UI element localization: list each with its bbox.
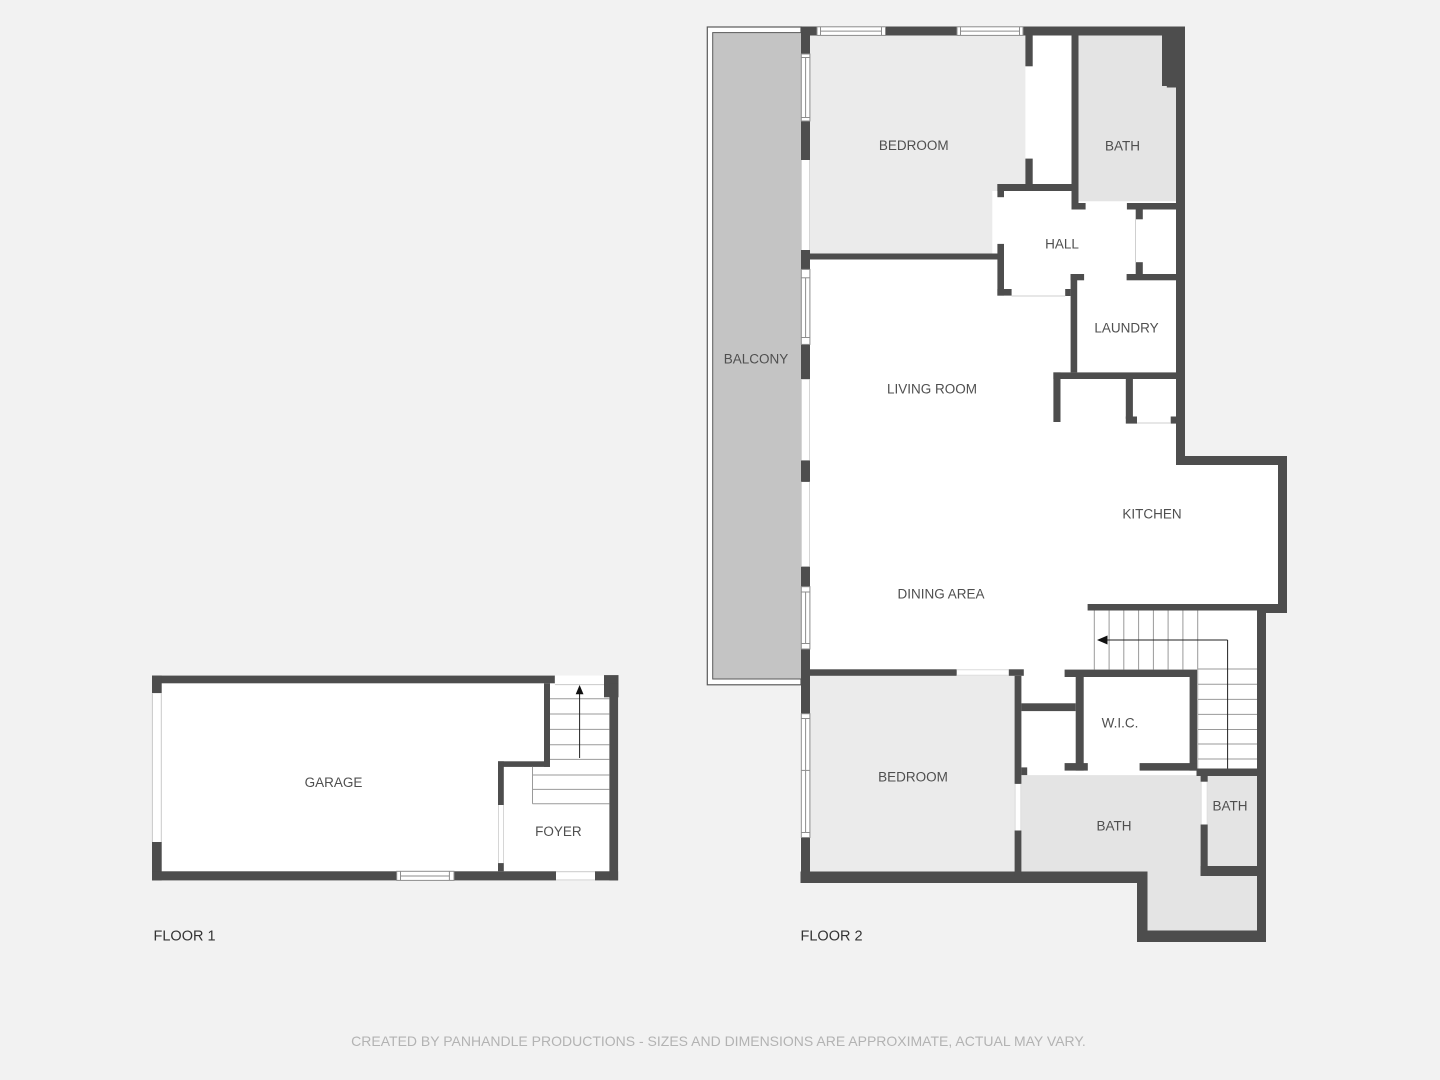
svg-text:BATH: BATH [1212, 799, 1247, 814]
svg-text:GARAGE: GARAGE [305, 775, 363, 790]
svg-text:KITCHEN: KITCHEN [1122, 507, 1181, 522]
svg-text:W.I.C.: W.I.C. [1102, 716, 1139, 731]
svg-text:BEDROOM: BEDROOM [878, 770, 948, 785]
svg-text:HALL: HALL [1045, 237, 1079, 252]
svg-text:FLOOR 1: FLOOR 1 [154, 929, 216, 945]
svg-text:FLOOR 2: FLOOR 2 [801, 929, 863, 945]
svg-text:BEDROOM: BEDROOM [879, 138, 949, 153]
svg-text:BATH: BATH [1105, 139, 1140, 154]
svg-text:LIVING ROOM: LIVING ROOM [887, 382, 977, 397]
svg-text:BALCONY: BALCONY [724, 352, 789, 367]
svg-text:BATH: BATH [1096, 819, 1131, 834]
svg-text:FOYER: FOYER [535, 824, 582, 839]
svg-text:LAUNDRY: LAUNDRY [1094, 321, 1158, 336]
svg-text:DINING AREA: DINING AREA [897, 587, 984, 602]
svg-text:CREATED BY PANHANDLE PRODUCTIO: CREATED BY PANHANDLE PRODUCTIONS - SIZES… [351, 1033, 1086, 1049]
